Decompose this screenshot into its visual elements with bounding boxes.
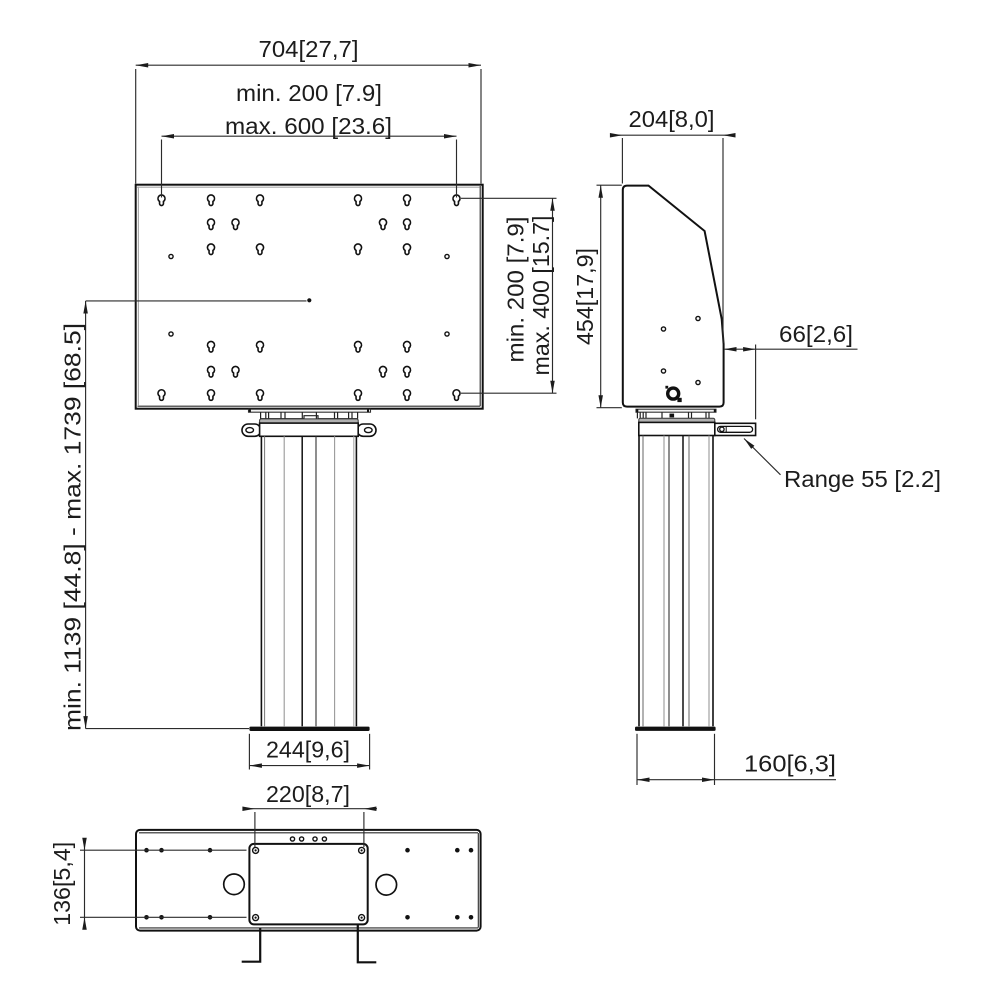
- svg-text:66[2,6]: 66[2,6]: [779, 321, 853, 347]
- svg-text:204[8,0]: 204[8,0]: [629, 106, 715, 132]
- svg-text:454[17,9]: 454[17,9]: [572, 248, 598, 345]
- svg-text:max. 600 [23.6]: max. 600 [23.6]: [225, 113, 392, 139]
- svg-text:min. 200 [7.9]: min. 200 [7.9]: [236, 80, 382, 106]
- svg-text:244[9,6]: 244[9,6]: [266, 737, 350, 763]
- svg-text:704[27,7]: 704[27,7]: [259, 36, 359, 62]
- svg-text:160[6,3]: 160[6,3]: [744, 751, 836, 777]
- svg-text:min. 200 [7.9]: min. 200 [7.9]: [502, 217, 528, 363]
- svg-text:136[5,4]: 136[5,4]: [49, 842, 75, 926]
- svg-text:max. 400 [15.7]: max. 400 [15.7]: [528, 216, 554, 376]
- svg-text:min. 1139 [44.8] - max. 1739 [: min. 1139 [44.8] - max. 1739 [68.5]: [59, 323, 85, 731]
- svg-text:220[8,7]: 220[8,7]: [266, 781, 350, 807]
- svg-text:Range 55 [2.2]: Range 55 [2.2]: [784, 466, 941, 492]
